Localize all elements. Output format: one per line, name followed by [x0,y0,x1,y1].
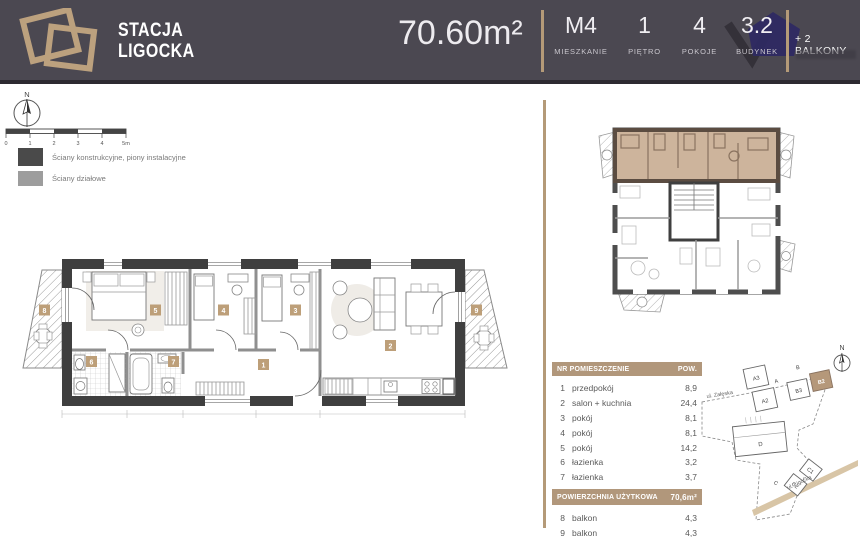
vertical-divider [543,100,546,528]
badge-room-4: 4 [218,305,229,316]
building-label: B [796,365,801,372]
stat-label: PIĘTRO [617,47,672,56]
usable-area-row: POWIERZCHNIA UŻYTKOWA 70,6m² [552,489,702,505]
header-bar: STACJA LIGOCKA 70.60m² M4 MIESZKANIE 1 P… [0,0,860,80]
badge-room-7: 7 [168,356,179,367]
row-nr: 9 [555,528,565,538]
wardrobe-icon [310,272,320,350]
legend: Ściany konstrukcyjne, piony instalacyjne… [18,148,186,191]
legend-item-partition: Ściany działowe [18,171,186,186]
rooms-table: NR POMIESZCZENIE POW. 1przedpokój8,9 2sa… [552,362,702,540]
row-nr: 4 [555,428,565,438]
plant-icon [132,324,144,336]
rooms-table-header: NR POMIESZCZENIE POW. [552,362,702,376]
brand-logo-icon [18,8,108,74]
armchair-icon [333,281,347,295]
flat-card-page: STACJA LIGOCKA 70.60m² M4 MIESZKANIE 1 P… [0,0,860,553]
desk-icon [228,274,248,282]
row-nr: 2 [555,398,565,408]
scale-bar: 0 1 2 3 4 5m [4,126,136,150]
svg-text:6: 6 [90,359,94,366]
bathroom-6 [72,352,126,396]
row-name: łazienka [572,472,685,482]
row-name: pokój [572,428,685,438]
wardrobe-icon [165,272,187,325]
badge-balcony-9: 9 [471,305,482,316]
row-name: pokój [572,413,685,423]
stat-value: M4 [545,12,617,39]
table-row: 2salon + kuchnia24,4 [552,396,702,411]
badge-room-5: 5 [150,305,161,316]
highlighted-apartment [615,130,778,181]
wardrobe-icon [196,382,244,395]
apartment-stats: M4 MIESZKANIE 1 PIĘTRO 4 POKOJE 3.2 BUDY… [545,12,787,56]
badge-room-2: 2 [385,340,396,351]
wardrobe-icon [325,379,353,394]
usable-area-label: POWIERZCHNIA UŻYTKOWA [557,494,658,501]
table-row: 3pokój8,1 [552,411,702,426]
stat-pokoje: 4 POKOJE [672,12,727,56]
svg-text:5: 5 [154,308,158,315]
kitchen [323,378,455,395]
badge-room-3: 3 [290,305,301,316]
stat-value: 4 [672,12,727,39]
legend-swatch-gray [18,171,43,186]
table-row: 8balkon4,3 [552,510,702,525]
legend-label: Ściany konstrukcyjne, piony instalacyjne [52,153,186,162]
svg-text:9: 9 [475,308,479,315]
legend-item-structural: Ściany konstrukcyjne, piony instalacyjne [18,148,186,166]
table-row: 4pokój8,1 [552,425,702,440]
desk-icon [291,274,309,282]
stat-value: 3.2 [727,12,787,39]
scale-tick-5: 5m [122,141,130,147]
badge-balcony-8: 8 [39,305,50,316]
header-divider-1 [541,10,544,72]
compass: N [6,88,48,130]
building-label: C [772,480,779,487]
dining-table-icon [406,292,442,326]
stat-value: 1 [617,12,672,39]
watermark-text-smudge [796,50,856,59]
header-bottom-strip [0,80,860,84]
building-d: D [732,413,788,456]
compass-n-label: N [24,90,29,99]
col-room: NR POMIESZCZENIE [557,366,629,373]
row-nr: 8 [555,513,565,523]
row-name: łazienka [572,457,685,467]
table-row: 1przedpokój8,9 [552,381,702,396]
badge-room-1: 1 [258,359,269,370]
table-row: 9balkon4,3 [552,525,702,540]
usable-area-value: 70,6m² [670,493,697,502]
row-name: balkon [572,513,685,523]
chair-icon [232,285,242,295]
legend-label: Ściany działowe [52,174,106,183]
col-area: POW. [678,366,697,373]
row-name: przedpokój [572,383,685,393]
coffee-table-icon [348,298,372,322]
table-row: 7łazienka3,7 [552,470,702,485]
building-cluster-c: C1 C2 C [772,451,822,503]
site-map: N D A3 A2 A B B3 [696,338,860,538]
stat-pietro: 1 PIĘTRO [617,12,672,56]
svg-text:8: 8 [43,308,47,315]
row-name: balkon [572,528,685,538]
stat-label: POKOJE [672,47,727,56]
table-row: 5pokój14,2 [552,440,702,455]
scale-tick-4: 4 [100,141,103,147]
table-row: 6łazienka3,2 [552,455,702,470]
row-nr: 6 [555,457,565,467]
svg-text:4: 4 [222,308,226,315]
balcony-9 [465,270,507,368]
sofa-icon [374,278,395,330]
street-label-zaleska: ul. Załęska [706,390,734,400]
building-label: A [774,379,779,386]
badge-room-6: 6 [86,356,97,367]
chair-icon [294,285,304,295]
row-nr: 5 [555,443,565,453]
compass-n-label: N [839,345,844,352]
stairwell [670,183,718,240]
sitemap-compass: N [834,345,850,372]
scale-tick-2: 2 [52,141,55,147]
brand-logo: STACJA LIGOCKA [18,8,209,74]
brand-line1: STACJA [118,20,195,41]
fridge-icon [443,379,454,394]
scale-tick-3: 3 [76,141,79,147]
brand-name: STACJA LIGOCKA [118,20,195,62]
row-nr: 3 [555,413,565,423]
row-name: salon + kuchnia [572,398,680,408]
stat-label: BUDYNEK [727,47,787,56]
legend-swatch-dark [18,148,43,166]
apartment-floorplan: 5 4 3 2 1 6 7 8 9 [10,248,540,433]
rooms-table-rows: 1przedpokój8,9 2salon + kuchnia24,4 3pok… [552,381,702,484]
toilet-icon [162,378,174,393]
compass-needle-icon [27,99,31,114]
stove-icon [422,380,440,394]
floor-overview-plan [588,98,812,322]
armchair-icon [333,325,347,339]
stat-mieszkanie: M4 MIESZKANIE [545,12,617,56]
header-divider-2 [786,10,789,72]
row-area: 24,4 [680,398,697,408]
row-name: pokój [572,443,680,453]
row-nr: 7 [555,472,565,482]
row-area: 14,2 [680,443,697,453]
scale-tick-0: 0 [4,141,7,147]
brand-line2: LIGOCKA [118,41,195,62]
row-nr: 1 [555,383,565,393]
svg-text:7: 7 [172,359,176,366]
svg-text:2: 2 [389,343,393,350]
compass-needle-outline [23,99,27,127]
stat-budynek: 3.2 BUDYNEK [727,12,787,56]
balcony-rows: 8balkon4,3 9balkon4,3 [552,510,702,540]
svg-text:1: 1 [262,362,266,369]
apartment-area: 70.60m² [398,14,523,53]
wardrobe-icon [244,298,256,334]
stat-label: MIESZKANIE [545,47,617,56]
building-cluster-ab: A3 A2 A B B3 B2 [743,352,834,413]
balcony-8 [23,270,62,368]
scale-tick-1: 1 [28,141,31,147]
svg-text:3: 3 [294,308,298,315]
dimension-line [62,410,465,418]
